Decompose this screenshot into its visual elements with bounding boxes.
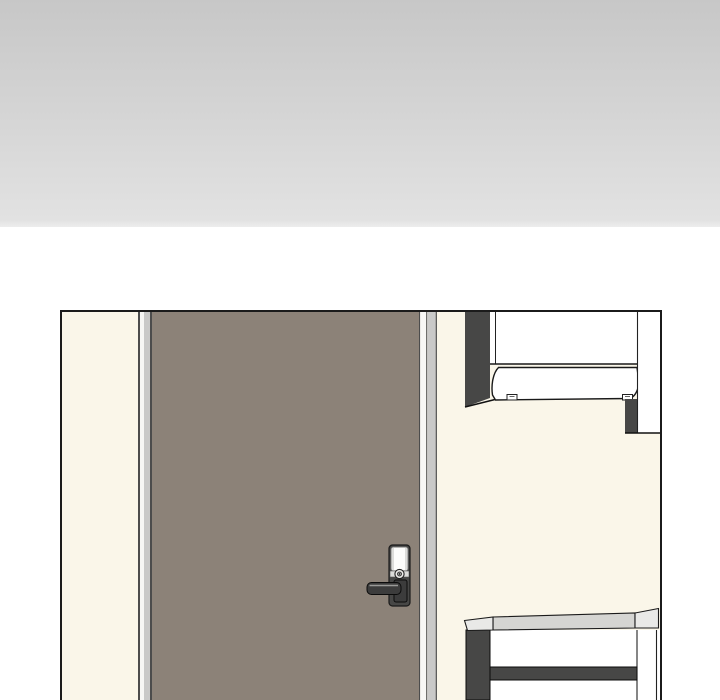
table — [465, 609, 661, 700]
page — [0, 0, 720, 700]
door-frame-right — [419, 312, 437, 700]
table-leg-left — [466, 630, 490, 700]
cabinet-shadow-block — [625, 399, 637, 433]
previous-panel-fade — [0, 0, 720, 227]
cabinet-right-panel — [637, 312, 660, 433]
door — [152, 312, 419, 700]
lock-thumbturn-dot — [399, 573, 400, 574]
comic-panel — [60, 310, 662, 700]
cabinet-side-dark — [465, 312, 490, 407]
table-backing — [490, 630, 660, 700]
lock-lever-handle — [367, 583, 401, 595]
panel-illustration — [62, 312, 660, 700]
table-stretcher — [490, 667, 637, 680]
hood-clip-left — [507, 395, 517, 401]
lock-plate-highlight — [394, 548, 405, 570]
cabinet-face — [490, 312, 637, 364]
door-frame-left — [138, 312, 152, 700]
